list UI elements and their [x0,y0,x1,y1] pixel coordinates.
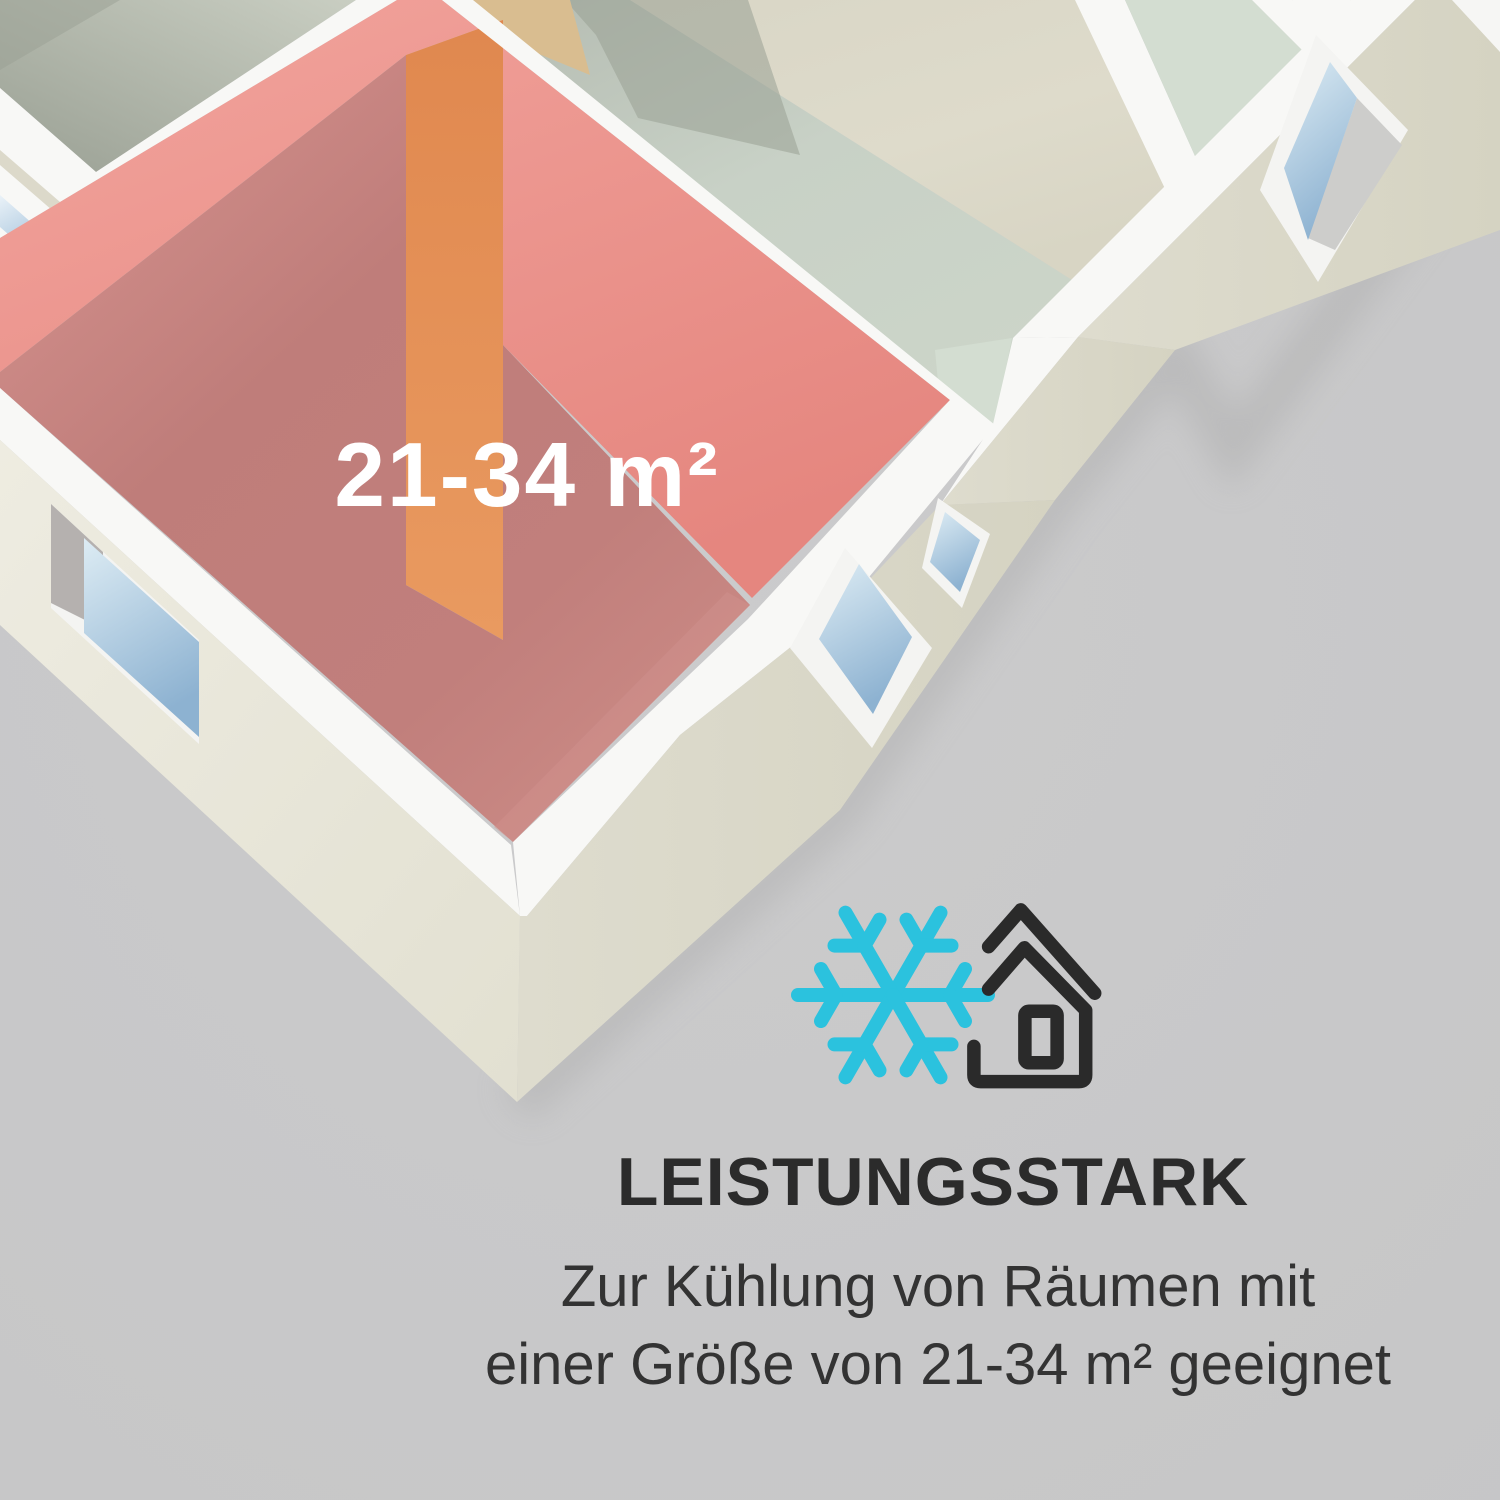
svg-text:einer Größe von 21-34 m² geeig: einer Größe von 21-34 m² geeignet [485,1332,1391,1397]
svg-text:Zur Kühlung von Räumen mit: Zur Kühlung von Räumen mit [561,1254,1315,1319]
svg-text:21-34 m²: 21-34 m² [334,425,719,526]
svg-text:LEISTUNGSSTARK: LEISTUNGSSTARK [617,1144,1249,1220]
